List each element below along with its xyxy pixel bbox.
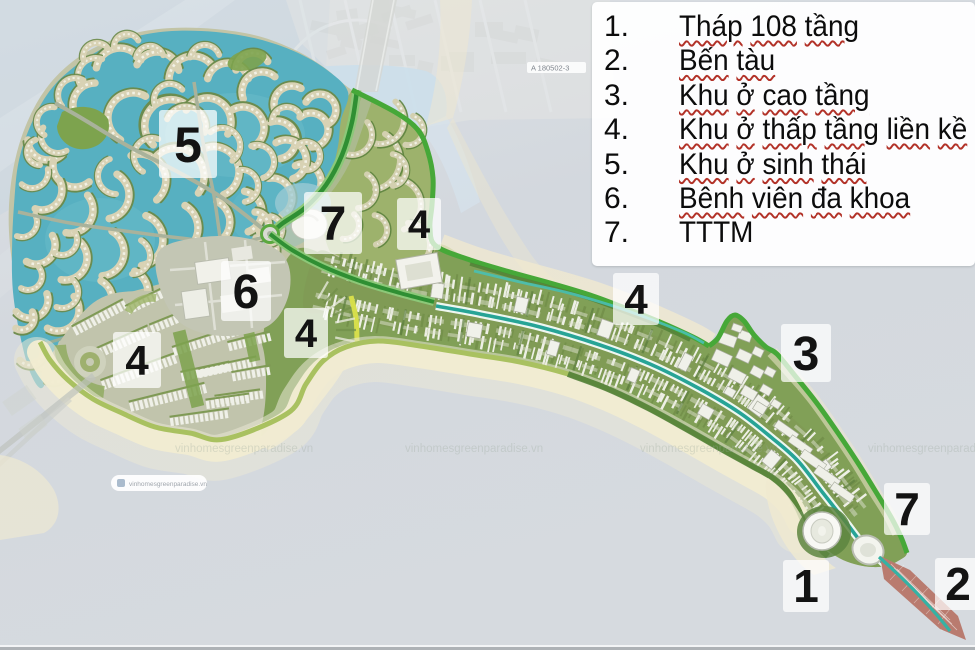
svg-text:7: 7 xyxy=(894,483,920,535)
svg-text:2: 2 xyxy=(945,558,971,610)
svg-text:1: 1 xyxy=(793,560,819,612)
svg-text:vinhomesgreenparadise.vn: vinhomesgreenparadise.vn xyxy=(640,443,778,455)
svg-text:vinhomesgreenparadise.vn: vinhomesgreenparadise.vn xyxy=(405,443,543,455)
svg-text:6: 6 xyxy=(233,266,260,319)
svg-text:vinhomesgreenparadise.vn: vinhomesgreenparadise.vn xyxy=(175,443,313,455)
svg-text:4: 4 xyxy=(295,312,318,356)
svg-text:4: 4 xyxy=(125,337,149,384)
svg-text:4: 4 xyxy=(624,276,648,323)
svg-text:5: 5 xyxy=(174,117,202,173)
svg-text:A 180502-3: A 180502-3 xyxy=(531,64,569,73)
svg-text:4: 4 xyxy=(408,203,431,247)
svg-text:3: 3 xyxy=(793,328,820,381)
svg-text:7: 7 xyxy=(320,198,347,251)
svg-text:vinhomesgreenparadise.vn: vinhomesgreenparadise.vn xyxy=(129,481,207,488)
svg-text:vinhomesgreenparadise.vn: vinhomesgreenparadise.vn xyxy=(868,443,975,455)
